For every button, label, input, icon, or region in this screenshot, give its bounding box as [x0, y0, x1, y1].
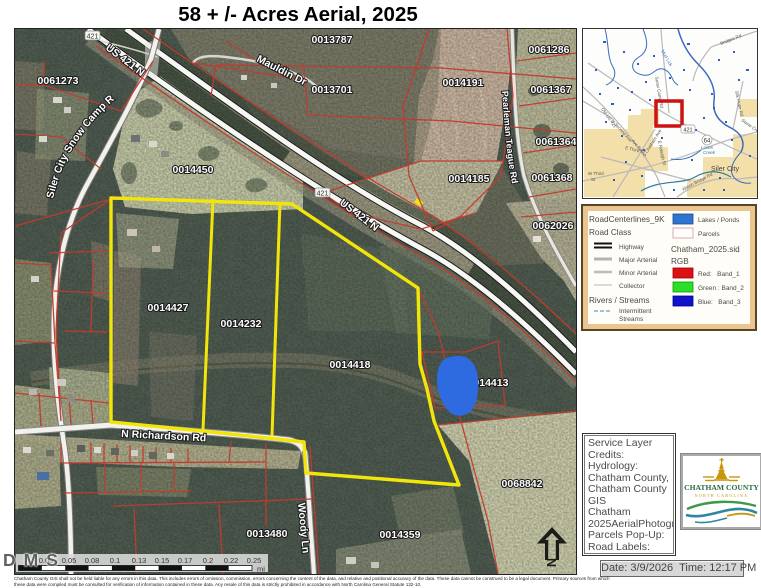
svg-text:0.1: 0.1 [110, 556, 120, 565]
svg-text:0014427: 0014427 [148, 302, 189, 314]
svg-text:0013787: 0013787 [312, 34, 353, 46]
svg-text:0014359: 0014359 [380, 529, 421, 541]
svg-text:0061368: 0061368 [532, 172, 573, 184]
svg-text:421: 421 [87, 34, 99, 41]
svg-text:0014191: 0014191 [443, 77, 484, 89]
svg-text:0014418: 0014418 [330, 359, 371, 371]
svg-text:Green : Band_2: Green : Band_2 [698, 285, 744, 292]
svg-text:0.13: 0.13 [132, 556, 147, 565]
svg-text:NORTH CAROLINA: NORTH CAROLINA [695, 493, 749, 498]
svg-text:Creek: Creek [703, 150, 716, 155]
svg-text:0.15: 0.15 [155, 556, 170, 565]
svg-text:0061364: 0061364 [536, 136, 577, 148]
svg-text:0061273: 0061273 [38, 75, 79, 87]
svg-text:0062026: 0062026 [533, 220, 574, 232]
svg-text:St: St [591, 177, 596, 182]
svg-text:421: 421 [683, 128, 692, 134]
svg-text:Red: Band_1: Red: Band_1 [698, 271, 740, 278]
svg-text:Chatham_2025.sid: Chatham_2025.sid [671, 245, 740, 254]
svg-text:mi: mi [257, 565, 265, 574]
svg-text:0061367: 0061367 [531, 84, 572, 96]
svg-text:0013701: 0013701 [312, 84, 353, 96]
svg-text:Intermittent: Intermittent [619, 308, 652, 315]
svg-text:64: 64 [704, 139, 711, 145]
svg-text:Lakes / Ponds: Lakes / Ponds [698, 217, 740, 224]
svg-text:0013480: 0013480 [247, 528, 288, 540]
svg-text:W Third: W Third [588, 171, 604, 176]
svg-text:0068842: 0068842 [502, 478, 543, 490]
svg-text:0.2: 0.2 [203, 556, 213, 565]
svg-text:Parcels: Parcels [698, 231, 720, 238]
svg-text:0014450: 0014450 [173, 164, 214, 176]
svg-text:0.17: 0.17 [178, 556, 193, 565]
svg-text:RGB: RGB [671, 257, 689, 266]
svg-text:Blue: Band_3: Blue: Band_3 [698, 299, 741, 306]
svg-text:Rivers / Streams: Rivers / Streams [589, 296, 650, 305]
svg-text:Major Arterial: Major Arterial [619, 257, 658, 264]
svg-text:0061286: 0061286 [529, 44, 570, 56]
svg-text:Road Class: Road Class [589, 228, 631, 237]
svg-text:421: 421 [317, 191, 329, 198]
svg-text:0014185: 0014185 [449, 173, 490, 185]
svg-text:0.22: 0.22 [224, 556, 239, 565]
svg-text:Minor Arterial: Minor Arterial [619, 270, 658, 277]
svg-text:Siler City: Siler City [711, 166, 740, 173]
svg-text:Streams: Streams [619, 316, 644, 323]
svg-text:Collector: Collector [619, 283, 645, 290]
svg-text:CHATHAM COUNTY: CHATHAM COUNTY [684, 483, 759, 492]
svg-text:RoadCenterlines_9K: RoadCenterlines_9K [589, 215, 665, 224]
svg-text:N: N [544, 558, 558, 567]
svg-text:Highway: Highway [619, 244, 645, 251]
svg-text:0.08: 0.08 [85, 556, 100, 565]
svg-text:0014232: 0014232 [221, 318, 262, 330]
